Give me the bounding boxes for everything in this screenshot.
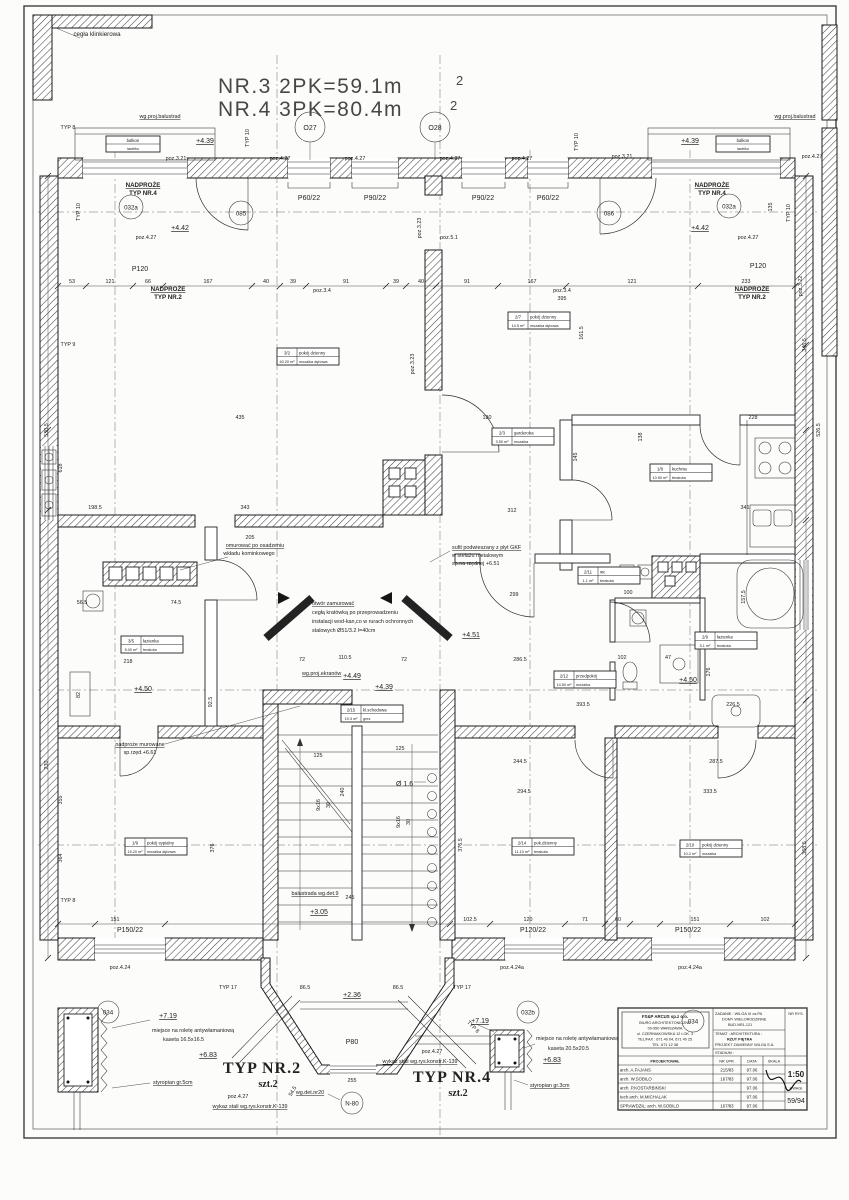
svg-text:balkon: balkon (127, 138, 140, 143)
typ-label: TYP 17 (219, 985, 237, 991)
grid-marker: 032a (119, 195, 143, 219)
svg-text:1/9: 1/9 (132, 841, 139, 846)
window-bottom-1 (95, 938, 165, 960)
window-label: P60/22 (537, 195, 559, 202)
company-line: BIURO ARCHITEKTONICZNE (639, 1021, 691, 1025)
grid-marker: 032a (717, 194, 741, 218)
dim-label: 91 (464, 279, 470, 285)
level-mark: +4.39 (196, 138, 214, 145)
window-label: P120 (132, 266, 148, 273)
tb-header: PROJEKTOWAŁ (650, 1060, 680, 1064)
svg-text:terakota: terakota (672, 476, 687, 480)
tb-row-date: 97.06 (747, 1104, 758, 1109)
page-title: NR.4 3PK=80.4m (218, 98, 403, 121)
svg-text:N-80: N-80 (345, 1101, 359, 1108)
dim-label: 40 (418, 279, 424, 285)
note-opening: cegłą kratówką po przeprowadzeniu (312, 610, 398, 616)
svg-text:pok.dzienny: pok.dzienny (534, 841, 558, 846)
dim-label: 39 (290, 279, 296, 285)
dim-label: 56.5 (77, 600, 88, 606)
level-mark: +3.05 (310, 909, 328, 916)
typ-label: TYP 10 (76, 203, 82, 221)
level-mark: +6.83 (543, 1057, 561, 1064)
poz-label: poz.3.23 (417, 218, 423, 239)
grid-marker: O28 (420, 112, 450, 160)
note-fi16: Ø 1.6 (396, 781, 413, 788)
lintel-label: TYP NR.4 (129, 190, 157, 197)
svg-text:mozaika: mozaika (514, 440, 529, 444)
room-table: 2/9łazienka5.1 m²terakota (695, 632, 757, 649)
tb-row-name: arch. P.KOSTARBIŃSKI (620, 1086, 666, 1091)
dim-label: 151 (691, 917, 700, 923)
room-table: 2/10pokój dzienny10.2 m²mozaika (680, 840, 742, 857)
svg-text:łazienka: łazienka (717, 635, 733, 640)
dim-label: 618 (58, 464, 64, 473)
note-balustrad-right: wg.proj.balustrad (773, 114, 815, 120)
svg-text:kl.schodowa: kl.schodowa (363, 708, 387, 713)
poz-label: poz.4.24a (678, 965, 702, 971)
poz-label: poz.4.27 (802, 154, 823, 160)
typ-label: TYP 10 (786, 204, 792, 222)
poz-label: poz.4.27 (136, 235, 157, 241)
svg-text:19.3 m²: 19.3 m² (345, 717, 359, 721)
dim-label: 226.5 (726, 702, 740, 708)
tb-zadanie: BUD.NR1-121 (728, 1023, 752, 1027)
dim-label: 86.5 (300, 985, 311, 991)
dim-label: 9x16 (396, 816, 402, 828)
svg-text:mozaika dębowa: mozaika dębowa (299, 360, 328, 364)
dim-label: 299 (510, 592, 519, 598)
poz-label: poz.4.27 (270, 156, 291, 162)
dim-label: 47 (665, 655, 671, 661)
dim-label: 244.5 (513, 759, 527, 765)
level-mark: +7.19 (471, 1018, 489, 1025)
dim-label: 66 (145, 279, 151, 285)
svg-text:032a: 032a (722, 204, 736, 211)
svg-text:wc: wc (600, 570, 606, 575)
dim-label: 9x16 (316, 799, 322, 811)
dim-label: 82 (76, 692, 82, 698)
svg-text:2/14: 2/14 (518, 841, 527, 846)
note-opening: stalowych Ø51/3.2 l=40cm (312, 628, 376, 634)
svg-text:kuchnia: kuchnia (672, 467, 687, 472)
dim-label: 240 (340, 788, 346, 797)
tb-stadium: STADIUM : (715, 1051, 734, 1055)
washbasin (630, 610, 646, 626)
svg-text:10.50 m²: 10.50 m² (653, 476, 669, 480)
poz-label: poz.3.4 (313, 288, 331, 294)
svg-text:mozaika: mozaika (576, 683, 591, 687)
tb-row-upr: 167/83 (720, 1104, 734, 1109)
dim-label: 72 (401, 657, 407, 663)
window-top-balcony-right (652, 158, 780, 178)
poz-label: poz.4.27 (512, 156, 533, 162)
room-table: 1/9pokój sypialny15.20 m²mozaika dębowa (125, 838, 187, 855)
grid-marker: 086 (597, 201, 621, 225)
tb-row-upr: 167/83 (720, 1077, 734, 1082)
window-top-4 (528, 158, 568, 188)
dim-label: 53 (69, 279, 75, 285)
typ-label: TYP 10 (245, 129, 251, 147)
poz-label: poz.4.27 (345, 156, 366, 162)
note-fireplace: omurować po osadzeniu (226, 543, 284, 549)
svg-text:mozaika dębowa: mozaika dębowa (147, 850, 176, 854)
svg-text:086: 086 (604, 211, 615, 218)
dim-label: 167 (528, 279, 537, 285)
poz-label: poz.3.4 (553, 288, 571, 294)
dim-label: 71 (582, 917, 588, 923)
note-ceiling: sp.na rzędnej +6.51 (452, 561, 500, 567)
tb-drawing-number: 59/94 (787, 1098, 805, 1105)
dim-label: 245 (346, 895, 355, 901)
window-label: P90/22 (472, 195, 494, 202)
svg-text:2/10: 2/10 (686, 843, 695, 848)
window-label: P150/22 (675, 927, 701, 934)
company-line: TEL. 671 12 38 (652, 1043, 678, 1047)
note-balustrade: balustrada wg.det.9 (291, 891, 338, 897)
note-det20: wg.det.nr20 (295, 1090, 324, 1096)
room-table: 3/5łazienka5.00 m²terakota (121, 636, 183, 653)
detail-steel: wykaz stali wg.rys.konstr.K-139 (212, 1104, 288, 1110)
dim-label: 287.5 (709, 759, 723, 765)
svg-text:14.5 m²: 14.5 m² (512, 324, 526, 328)
svg-text:lastriko: lastriko (737, 147, 749, 151)
detail-note: styropian gr.3cm (530, 1083, 570, 1089)
balcony-table: balkonlastriko (716, 136, 770, 152)
svg-text:3/2: 3/2 (284, 351, 291, 356)
svg-text:5.00 m²: 5.00 m² (125, 648, 139, 652)
grid-marker: N-80 (341, 1092, 363, 1114)
svg-text:2/11: 2/11 (584, 570, 593, 575)
svg-text:przedpokój: przedpokój (576, 674, 597, 679)
svg-text:3.50 m²: 3.50 m² (496, 440, 510, 444)
tb-row-name: arch. A.FAJANS (620, 1068, 651, 1073)
typ-label: TYP 9 (61, 342, 76, 348)
dim-label: 102 (761, 917, 770, 923)
kitchen-sink (750, 505, 795, 547)
dim-label: 343 (241, 505, 250, 511)
dim-label: 110.5 (338, 655, 351, 661)
dim-label: 151 (111, 917, 120, 923)
poz-label: poz.4.24 (110, 965, 131, 971)
window-label: P60/22 (298, 195, 320, 202)
lintel-label: NADPROŻE (126, 182, 161, 189)
room-table: 2/15kl.schodowa19.3 m²gres (341, 705, 403, 722)
svg-text:085: 085 (236, 211, 247, 218)
typ-label: TYP 8 (61, 898, 76, 904)
tb-row-upr: 215/83 (720, 1068, 734, 1073)
poz-label: poz.4.27 (440, 156, 461, 162)
note-opening: instalacji wod-kan,co w rurach ochronnyc… (312, 619, 413, 625)
svg-text:40.20 m²: 40.20 m² (280, 360, 296, 364)
svg-text:14.50 m²: 14.50 m² (557, 683, 573, 687)
detail-qty: szt.2 (258, 1079, 277, 1090)
grid-lines (38, 55, 818, 1135)
note-klinkier: cegła klinkierowa (73, 31, 121, 38)
dim-label: 167 (204, 279, 213, 285)
dim-label: 355 (58, 796, 64, 805)
dim-label: 92.5 (208, 697, 214, 708)
room-table: 2/11wc1.1 m²terakota (578, 567, 640, 584)
dim-label: 376 (210, 844, 216, 853)
dim-label: 91 (343, 279, 349, 285)
poz-label: poz.3.23 (410, 354, 416, 375)
dim-label: 135 (768, 203, 774, 212)
sheet-title: NR.3 2PK=59.1m 2 NR.4 3PK=80.4m 2 (218, 73, 463, 121)
svg-text:pokój sypialny: pokój sypialny (147, 841, 175, 846)
dim-label: 228 (749, 415, 758, 421)
dim-label: 312 (508, 508, 517, 514)
dim-label: 157.5 (741, 590, 747, 604)
note-ceiling: sufit podwieszany z płyt GKF (452, 545, 522, 551)
window-label: P80 (346, 1039, 359, 1046)
tb-scale: 1:50 (788, 1070, 805, 1079)
note-lintel-masonry: nadproże murowane (115, 742, 164, 748)
detail-note: miejsce na roletę antywłamaniową (536, 1036, 618, 1042)
dim-label: 30 (406, 819, 412, 825)
svg-text:2/9: 2/9 (702, 635, 709, 640)
level-mark: +4.50 (134, 686, 152, 693)
dim-label: 393.5 (576, 702, 590, 708)
svg-text:mozaika: mozaika (702, 852, 717, 856)
tb-temat: TEMAT : ARCHITEKTURA : (715, 1032, 762, 1036)
poz-label: poz.4.27 (422, 1049, 443, 1055)
dim-label: 364 (58, 854, 64, 863)
dim-label: 230 (44, 761, 50, 770)
grid-marker: 032b (517, 1001, 539, 1023)
level-mark: +4.39 (375, 684, 393, 691)
poz-label: poz.5.1 (440, 235, 458, 241)
svg-text:terakota: terakota (717, 644, 732, 648)
svg-text:balkon: balkon (737, 138, 750, 143)
svg-text:3/5: 3/5 (128, 639, 135, 644)
dim-label: 121 (628, 279, 637, 285)
balcony-table: balkonlastriko (106, 136, 160, 152)
dim-label: 30 (326, 802, 332, 808)
detail-title: TYP NR.2 (223, 1060, 301, 1077)
staircase (278, 726, 438, 1009)
note-opening: otwór zamurować (312, 601, 355, 607)
svg-text:2/7: 2/7 (515, 315, 522, 320)
tb-temat: PROJEKT ZAMIENNY WILGA S.A. (715, 1043, 774, 1047)
tb-zadanie: DOMY WIELORODZINNE (722, 1018, 767, 1022)
poz-label: poz.4.27 (738, 235, 759, 241)
room-table: 1/8kuchnia10.50 m²terakota (650, 464, 712, 481)
svg-text:15.20 m²: 15.20 m² (128, 850, 144, 854)
dim-label: 72 (299, 657, 305, 663)
svg-text:garderoba: garderoba (514, 431, 534, 436)
svg-text:034: 034 (103, 1010, 114, 1017)
svg-text:2/15: 2/15 (347, 708, 356, 713)
typ-label: TYP 17 (453, 985, 471, 991)
dim-label: 138 (638, 433, 644, 442)
svg-text:1/8: 1/8 (657, 467, 664, 472)
svg-text:5.1 m²: 5.1 m² (700, 644, 711, 648)
company-name: FS&P ARCUS sp.z o.o. (642, 1014, 688, 1019)
poz-label: poz.3.21 (612, 154, 633, 160)
dim-label: 40 (263, 279, 269, 285)
floorplan-sheet: 53 121 66 167 40 39 91 39 40 91 167 121 … (0, 0, 849, 1200)
room-table: 2/3garderoba3.50 m²mozaika (492, 428, 554, 445)
note-lintel-masonry: sp.rzęd.+6.61 (124, 750, 157, 756)
detail-typ-nr4: +7.19 miejsce na roletę antywłamaniową k… (382, 996, 619, 1110)
dim-label: 530.5 (44, 423, 50, 437)
room-table: 3/2pokój dzienny40.20 m²mozaika dębowa (277, 348, 339, 365)
dim-label: 176 (706, 668, 712, 677)
lintel-label: TYP NR.2 (154, 294, 182, 301)
tb-row-date: 97.06 (747, 1086, 758, 1091)
dim-label: 368.5 (802, 841, 808, 855)
lintel-label: NADPROŻE (151, 286, 186, 293)
tb-row-name: tech.arch. M.MICHALAK (620, 1095, 667, 1100)
lintel-label: NADPROŻE (735, 286, 770, 293)
dim-label: 255 (348, 1078, 357, 1084)
dim-label: 435 (236, 415, 245, 421)
window-label: P90/22 (364, 195, 386, 202)
poz-label: poz.3.21 (166, 156, 187, 162)
tb-row-date: 97.06 (747, 1077, 758, 1082)
company-line: 00-950 WARSZAWA (648, 1027, 683, 1031)
tb-row-date: 97.06 (747, 1095, 758, 1100)
dim-label: 102 (618, 655, 627, 661)
tb-header: NR UPR. (719, 1060, 735, 1064)
svg-text:2/12: 2/12 (560, 674, 569, 679)
room-table: 2/14pok.dzienny11.10 m²terakota (512, 838, 574, 855)
tb-row-name: SPRAWDZIŁ: arch. W.SOBILO (620, 1104, 680, 1109)
dim-label: 218 (124, 659, 133, 665)
page-title: NR.3 2PK=59.1m (218, 75, 403, 98)
dim-label: 341 (741, 505, 750, 511)
tb-row-date: 97.06 (747, 1068, 758, 1073)
typ-label: TYP 8 (61, 125, 76, 131)
lintel-label: NADPROŻE (695, 182, 730, 189)
svg-text:pokój dzienny: pokój dzienny (702, 843, 729, 848)
dim-label: 86.5 (393, 985, 404, 991)
title-block: FS&P ARCUS sp.z o.o. BIURO ARCHITEKTONIC… (618, 1008, 807, 1110)
window-top-2 (352, 158, 398, 188)
dim-label: 286.5 (513, 657, 527, 663)
window-label: P120/22 (520, 927, 546, 934)
dim-label: 294.5 (517, 789, 531, 795)
dim-label: 205 (246, 535, 255, 541)
detail-typ-nr2: +7.19 miejsce na roletę antywłamaniową k… (58, 996, 301, 1130)
dim-label: 233 (742, 279, 751, 285)
poz-label: poz.4.24a (500, 965, 524, 971)
poz-label: poz.3.22 (798, 276, 804, 297)
detail-note: kaseta 20.5x20.5 (548, 1046, 589, 1052)
level-mark: +4.51 (462, 632, 480, 639)
floorplan-drawing: 53 121 66 167 40 39 91 39 40 91 167 121 … (0, 0, 849, 1200)
svg-text:O27: O27 (303, 125, 316, 132)
window-top-1 (288, 158, 330, 188)
svg-text:łazienka: łazienka (143, 639, 159, 644)
svg-text:lastriko: lastriko (127, 147, 139, 151)
window-bay (330, 1062, 376, 1075)
dim-label: 333.5 (703, 789, 717, 795)
dim-label: 120 (524, 917, 533, 923)
company-line: TEL/FAX : 671 40 04, 671 40 25 (638, 1038, 692, 1042)
window-label: P120 (750, 263, 766, 270)
svg-text:pokój dzienny: pokój dzienny (299, 351, 326, 356)
detail-note: styropian gr.5cm (153, 1080, 193, 1086)
room-table: 2/7pokój dzienny14.5 m²mozaika dębowa (508, 312, 570, 329)
note-balustrad-left: wg.proj.balustrad (138, 114, 180, 120)
svg-text:gres: gres (363, 717, 370, 721)
dim-label: 60 (615, 917, 621, 923)
company-line: ul. CZERNIAKOWSKA 12 LOK. 3 (637, 1032, 693, 1036)
dim-label: 395 (558, 296, 567, 302)
detail-steel: wykaz stali wg.rys.konstr.K-139 (382, 1059, 458, 1065)
lintel-label: TYP NR.2 (738, 294, 766, 301)
dim-label: 74.5 (171, 600, 182, 606)
dim-label: 100 (624, 590, 633, 596)
window-label: P150/22 (117, 927, 143, 934)
page-title-sup: 2 (456, 73, 463, 88)
dim-label: 180 (483, 415, 492, 421)
note-ceiling: w stelażu metalowym (451, 553, 504, 559)
tb-header: DATA (747, 1060, 757, 1064)
svg-text:032a: 032a (124, 205, 138, 212)
dim-label: 526.5 (816, 423, 822, 437)
svg-text:terakota: terakota (600, 579, 615, 583)
tb-header: SKALA (768, 1060, 781, 1064)
detail-note: kaseta 16.5x16.5 (163, 1037, 204, 1043)
page-title-sup: 2 (450, 98, 457, 113)
grid-marker: 085 (229, 201, 253, 225)
room-table: 2/12przedpokój14.50 m²mozaika (554, 671, 616, 688)
grid-marker: 034 (97, 1001, 119, 1023)
dim-label: 346.5 (802, 338, 808, 352)
window-bottom-3 (652, 938, 724, 960)
dim-label: 125 (396, 746, 405, 752)
note-fireplace: wkładu kominkowego (222, 551, 274, 557)
detail-title: TYP NR.4 (413, 1069, 491, 1086)
dim-label: 161.5 (579, 326, 585, 340)
dim-label: 39 (393, 279, 399, 285)
tb-temat: RZUT PIĘTRA (727, 1038, 752, 1042)
level-mark: +4.42 (171, 225, 189, 232)
level-mark: +7.19 (159, 1013, 177, 1020)
svg-text:pokój dzienny: pokój dzienny (530, 315, 557, 320)
svg-text:terakota: terakota (534, 850, 549, 854)
typ-label: TYP 10 (574, 133, 580, 151)
svg-text:mozaika dębowa: mozaika dębowa (530, 324, 559, 328)
level-mark: +4.42 (691, 225, 709, 232)
level-mark: +2.36 (343, 992, 361, 999)
level-mark: +4.49 (343, 673, 361, 680)
svg-text:11.10 m²: 11.10 m² (515, 850, 530, 854)
level-mark: +4.50 (679, 677, 697, 684)
dim-label: 198.5 (88, 505, 102, 511)
svg-text:2/3: 2/3 (499, 431, 506, 436)
svg-text:terakota: terakota (143, 648, 158, 652)
window-bottom-2 (505, 938, 563, 960)
note-screens: wg.proj.ekranów (301, 671, 341, 677)
svg-text:032b: 032b (521, 1010, 535, 1017)
svg-text:O28: O28 (428, 125, 441, 132)
dim-label: 102.5 (463, 917, 477, 923)
toilet (623, 662, 637, 689)
dim-label: 125 (314, 753, 323, 759)
stove (755, 438, 795, 478)
dim-label: 145 (573, 453, 579, 462)
dim-label: 121 (106, 279, 115, 285)
detail-note: miejsce na roletę antywłamaniową (152, 1028, 234, 1034)
svg-text:1.1 m²: 1.1 m² (583, 579, 594, 583)
detail-qty: szt.2 (448, 1088, 467, 1099)
small-bath (712, 695, 760, 727)
tb-row-name: arch. W.SOBILO (620, 1077, 652, 1082)
